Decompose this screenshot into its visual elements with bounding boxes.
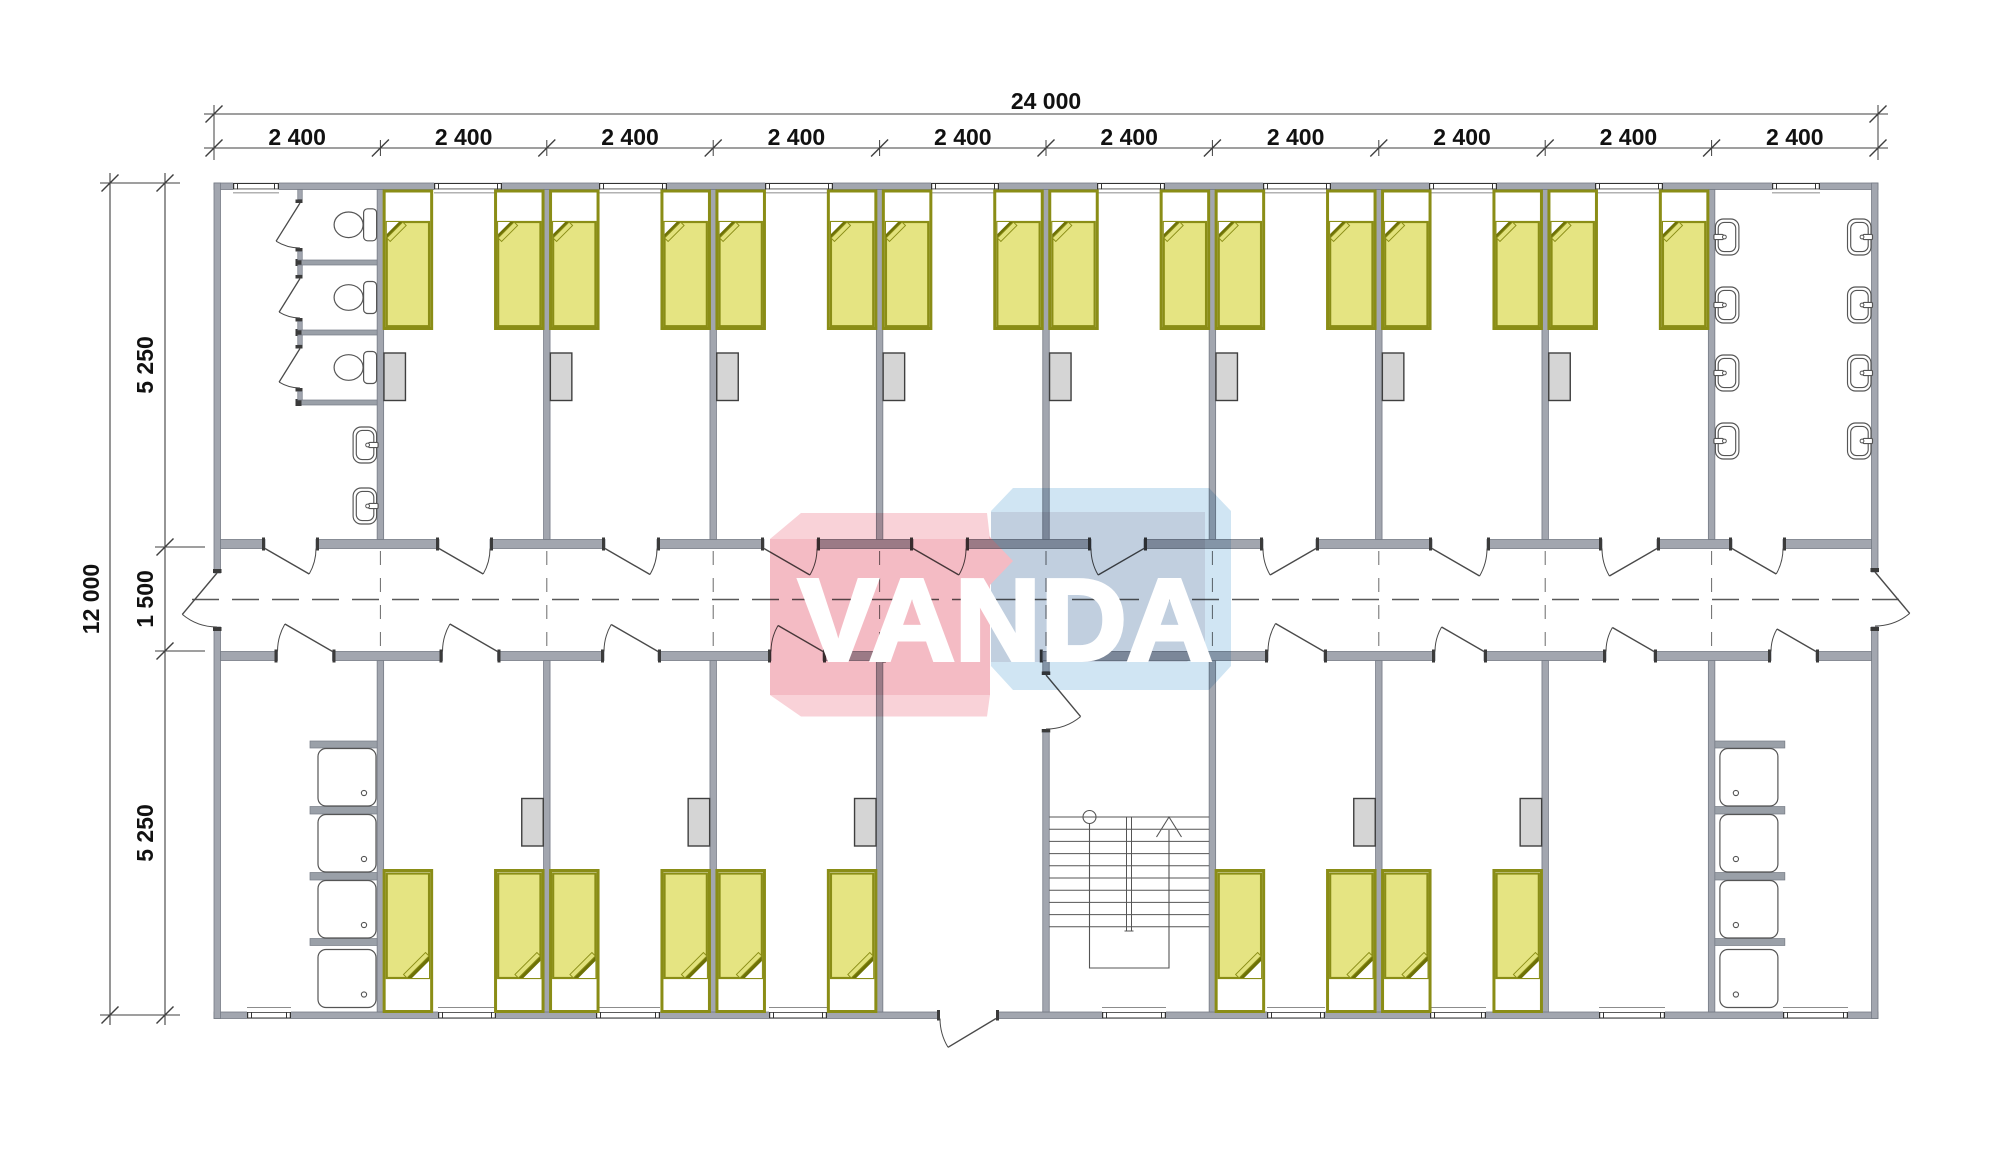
svg-text:24 000: 24 000 bbox=[1011, 88, 1081, 114]
svg-text:2 400: 2 400 bbox=[768, 124, 826, 150]
svg-text:2 400: 2 400 bbox=[601, 124, 659, 150]
svg-text:2 400: 2 400 bbox=[1433, 124, 1491, 150]
svg-text:2 400: 2 400 bbox=[1766, 124, 1824, 150]
svg-text:2 400: 2 400 bbox=[934, 124, 992, 150]
svg-text:5 250: 5 250 bbox=[132, 804, 158, 862]
svg-text:1 500: 1 500 bbox=[132, 570, 158, 628]
svg-text:2 400: 2 400 bbox=[1100, 124, 1158, 150]
svg-text:2 400: 2 400 bbox=[435, 124, 493, 150]
svg-text:12 000: 12 000 bbox=[78, 564, 104, 634]
svg-text:2 400: 2 400 bbox=[268, 124, 326, 150]
svg-text:5 250: 5 250 bbox=[132, 336, 158, 394]
svg-text:VANDA: VANDA bbox=[799, 555, 1213, 685]
svg-text:2 400: 2 400 bbox=[1600, 124, 1658, 150]
svg-text:2 400: 2 400 bbox=[1267, 124, 1325, 150]
